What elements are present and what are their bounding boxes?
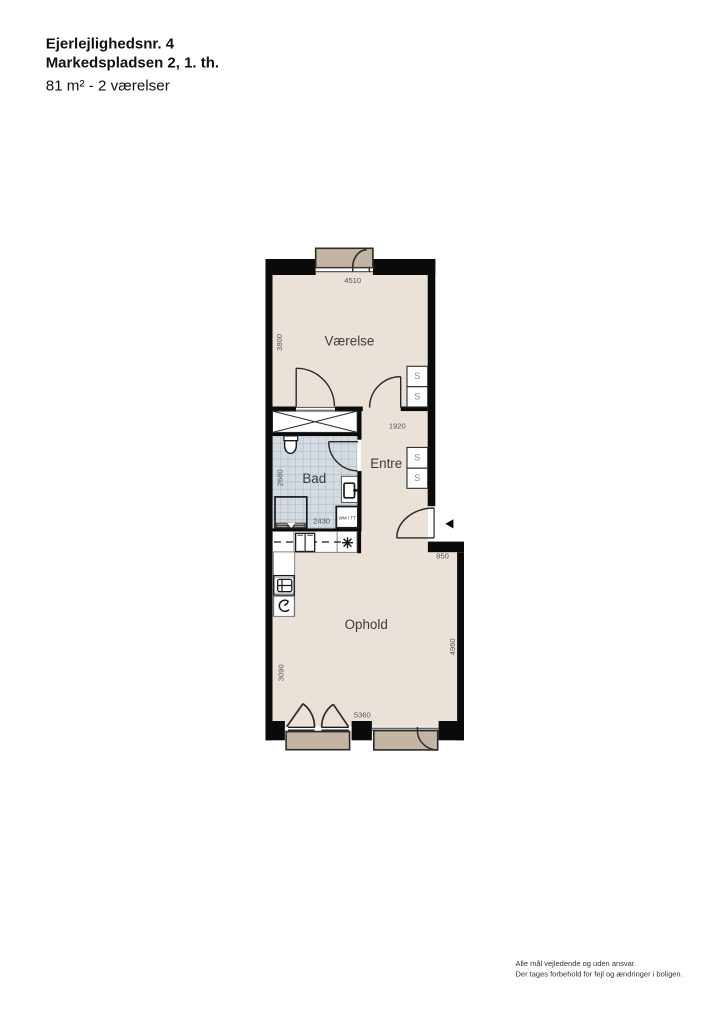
svg-text:4510: 4510 bbox=[344, 276, 361, 285]
svg-text:Bad: Bad bbox=[302, 471, 326, 486]
svg-text:S: S bbox=[414, 392, 420, 402]
svg-text:Entre: Entre bbox=[370, 456, 402, 471]
svg-text:S: S bbox=[414, 371, 420, 381]
svg-text:81 m² - 2 værelser: 81 m² - 2 værelser bbox=[46, 78, 170, 95]
svg-text:2430: 2430 bbox=[313, 517, 330, 526]
svg-text:S: S bbox=[414, 453, 420, 463]
svg-text:850: 850 bbox=[436, 552, 449, 561]
svg-text:Markedspladsen 2, 1. th.: Markedspladsen 2, 1. th. bbox=[46, 54, 219, 71]
svg-text:S: S bbox=[414, 473, 420, 483]
svg-text:Ejerlejlighedsnr. 4: Ejerlejlighedsnr. 4 bbox=[46, 36, 175, 53]
svg-text:4960: 4960 bbox=[448, 638, 457, 655]
svg-text:Alle mål vejledende og uden an: Alle mål vejledende og uden ansvar. bbox=[516, 959, 637, 968]
svg-text:WM / TT: WM / TT bbox=[339, 516, 356, 521]
svg-text:Ophold: Ophold bbox=[345, 617, 388, 632]
svg-text:5360: 5360 bbox=[354, 710, 371, 719]
svg-text:1920: 1920 bbox=[389, 422, 406, 431]
svg-text:3800: 3800 bbox=[275, 334, 284, 351]
svg-text:2680: 2680 bbox=[275, 469, 284, 486]
svg-text:3090: 3090 bbox=[276, 664, 285, 681]
svg-text:Der tages forbehold for fejl o: Der tages forbehold for fejl og ændringe… bbox=[516, 970, 683, 979]
svg-text:Værelse: Værelse bbox=[324, 334, 374, 349]
